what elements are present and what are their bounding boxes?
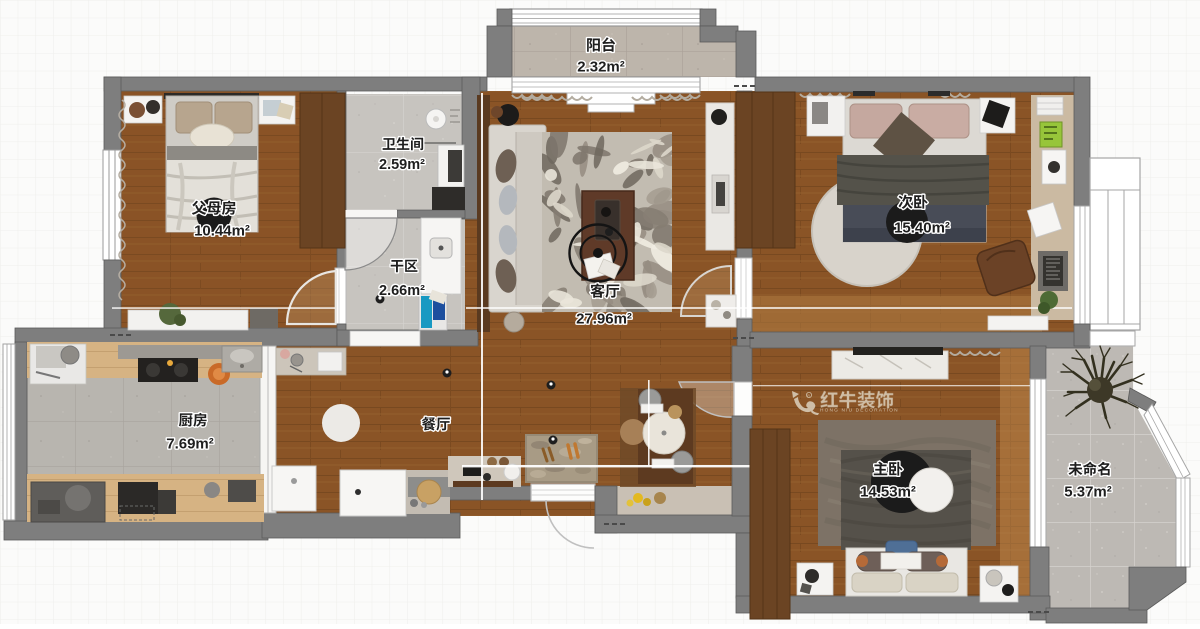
svg-text:14.53m²: 14.53m²	[860, 483, 916, 500]
svg-text:2.59m²: 2.59m²	[379, 157, 425, 173]
svg-text:R: R	[807, 394, 810, 398]
svg-text:5.37m²: 5.37m²	[1064, 483, 1112, 500]
svg-text:HONG NIU DECORATION: HONG NIU DECORATION	[820, 408, 899, 414]
svg-text:15.40m²: 15.40m²	[894, 219, 950, 236]
svg-text:2.32m²: 2.32m²	[577, 58, 625, 75]
svg-text:10.44m²: 10.44m²	[194, 222, 250, 239]
svg-text:2.66m²: 2.66m²	[379, 283, 425, 299]
svg-text:27.96m²: 27.96m²	[576, 310, 632, 327]
svg-text:7.69m²: 7.69m²	[166, 435, 214, 452]
